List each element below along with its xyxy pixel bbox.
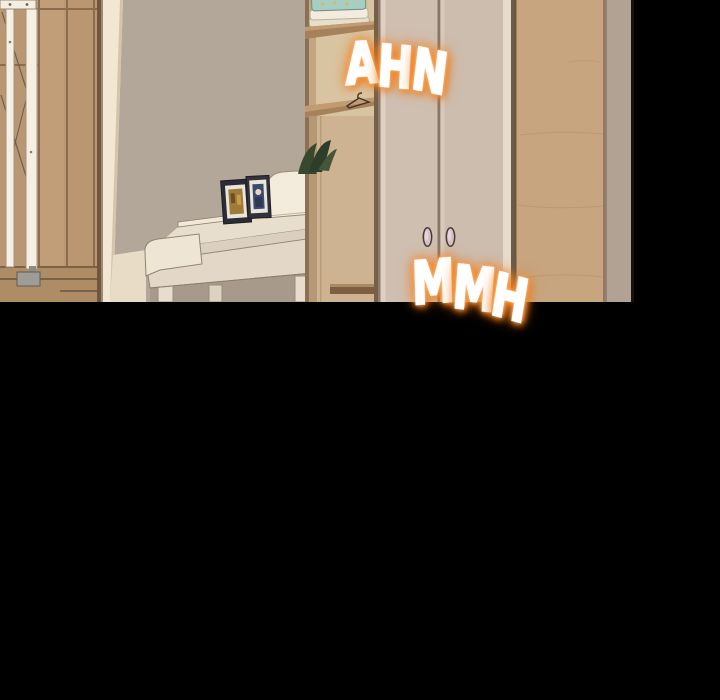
handle-highlight xyxy=(448,230,452,241)
panel-line xyxy=(320,116,322,302)
photo-frame-right xyxy=(246,175,271,218)
photo-figure xyxy=(237,195,242,205)
sfx-letter: M xyxy=(411,251,454,314)
gate-pole xyxy=(6,9,14,267)
gate-screw xyxy=(9,3,12,6)
gate-pole xyxy=(26,9,37,269)
gate-screw xyxy=(9,41,12,44)
gate-screw xyxy=(26,3,29,6)
left-wardrobe-panel xyxy=(68,0,92,302)
panel-line xyxy=(60,290,101,292)
sfx-ahn: AHN xyxy=(345,36,449,95)
wall-right-strip xyxy=(605,0,634,302)
photo-figure xyxy=(255,197,263,207)
left-wardrobe-panel xyxy=(40,0,64,302)
wood-panel-edge xyxy=(603,0,605,302)
panel-line xyxy=(38,0,40,302)
sfx-letter: A xyxy=(345,35,379,95)
room-illustration xyxy=(0,0,720,700)
panel-line xyxy=(30,8,101,10)
gate-top-bar xyxy=(0,0,36,9)
panel-line xyxy=(93,0,95,302)
panel-boundary xyxy=(631,0,634,302)
sfx-mmh: MMH xyxy=(411,252,530,315)
floor-strip xyxy=(110,250,146,302)
frame-photo xyxy=(228,189,244,215)
panel-line xyxy=(66,0,68,302)
towel-teal xyxy=(311,0,365,11)
wall-strip-edge xyxy=(605,0,607,302)
door-frame-line xyxy=(101,0,103,302)
sfx-letter: N xyxy=(409,41,451,105)
sfx-letter: H xyxy=(376,38,414,98)
wardrobe-base xyxy=(0,266,101,302)
panel-line xyxy=(0,266,101,268)
shelf-lower-panel xyxy=(309,116,375,302)
wardrobe-edge xyxy=(97,0,101,302)
shelf-bottom-board-face xyxy=(330,284,378,287)
piano-leg xyxy=(209,285,222,302)
panel-line xyxy=(0,278,101,280)
comic-panel: AHN MMH xyxy=(0,0,720,700)
gate-foot xyxy=(17,272,40,286)
left-wardrobe xyxy=(0,0,101,302)
gate-screw xyxy=(30,151,33,154)
photo-figure xyxy=(231,193,236,203)
handle-highlight xyxy=(425,230,429,241)
